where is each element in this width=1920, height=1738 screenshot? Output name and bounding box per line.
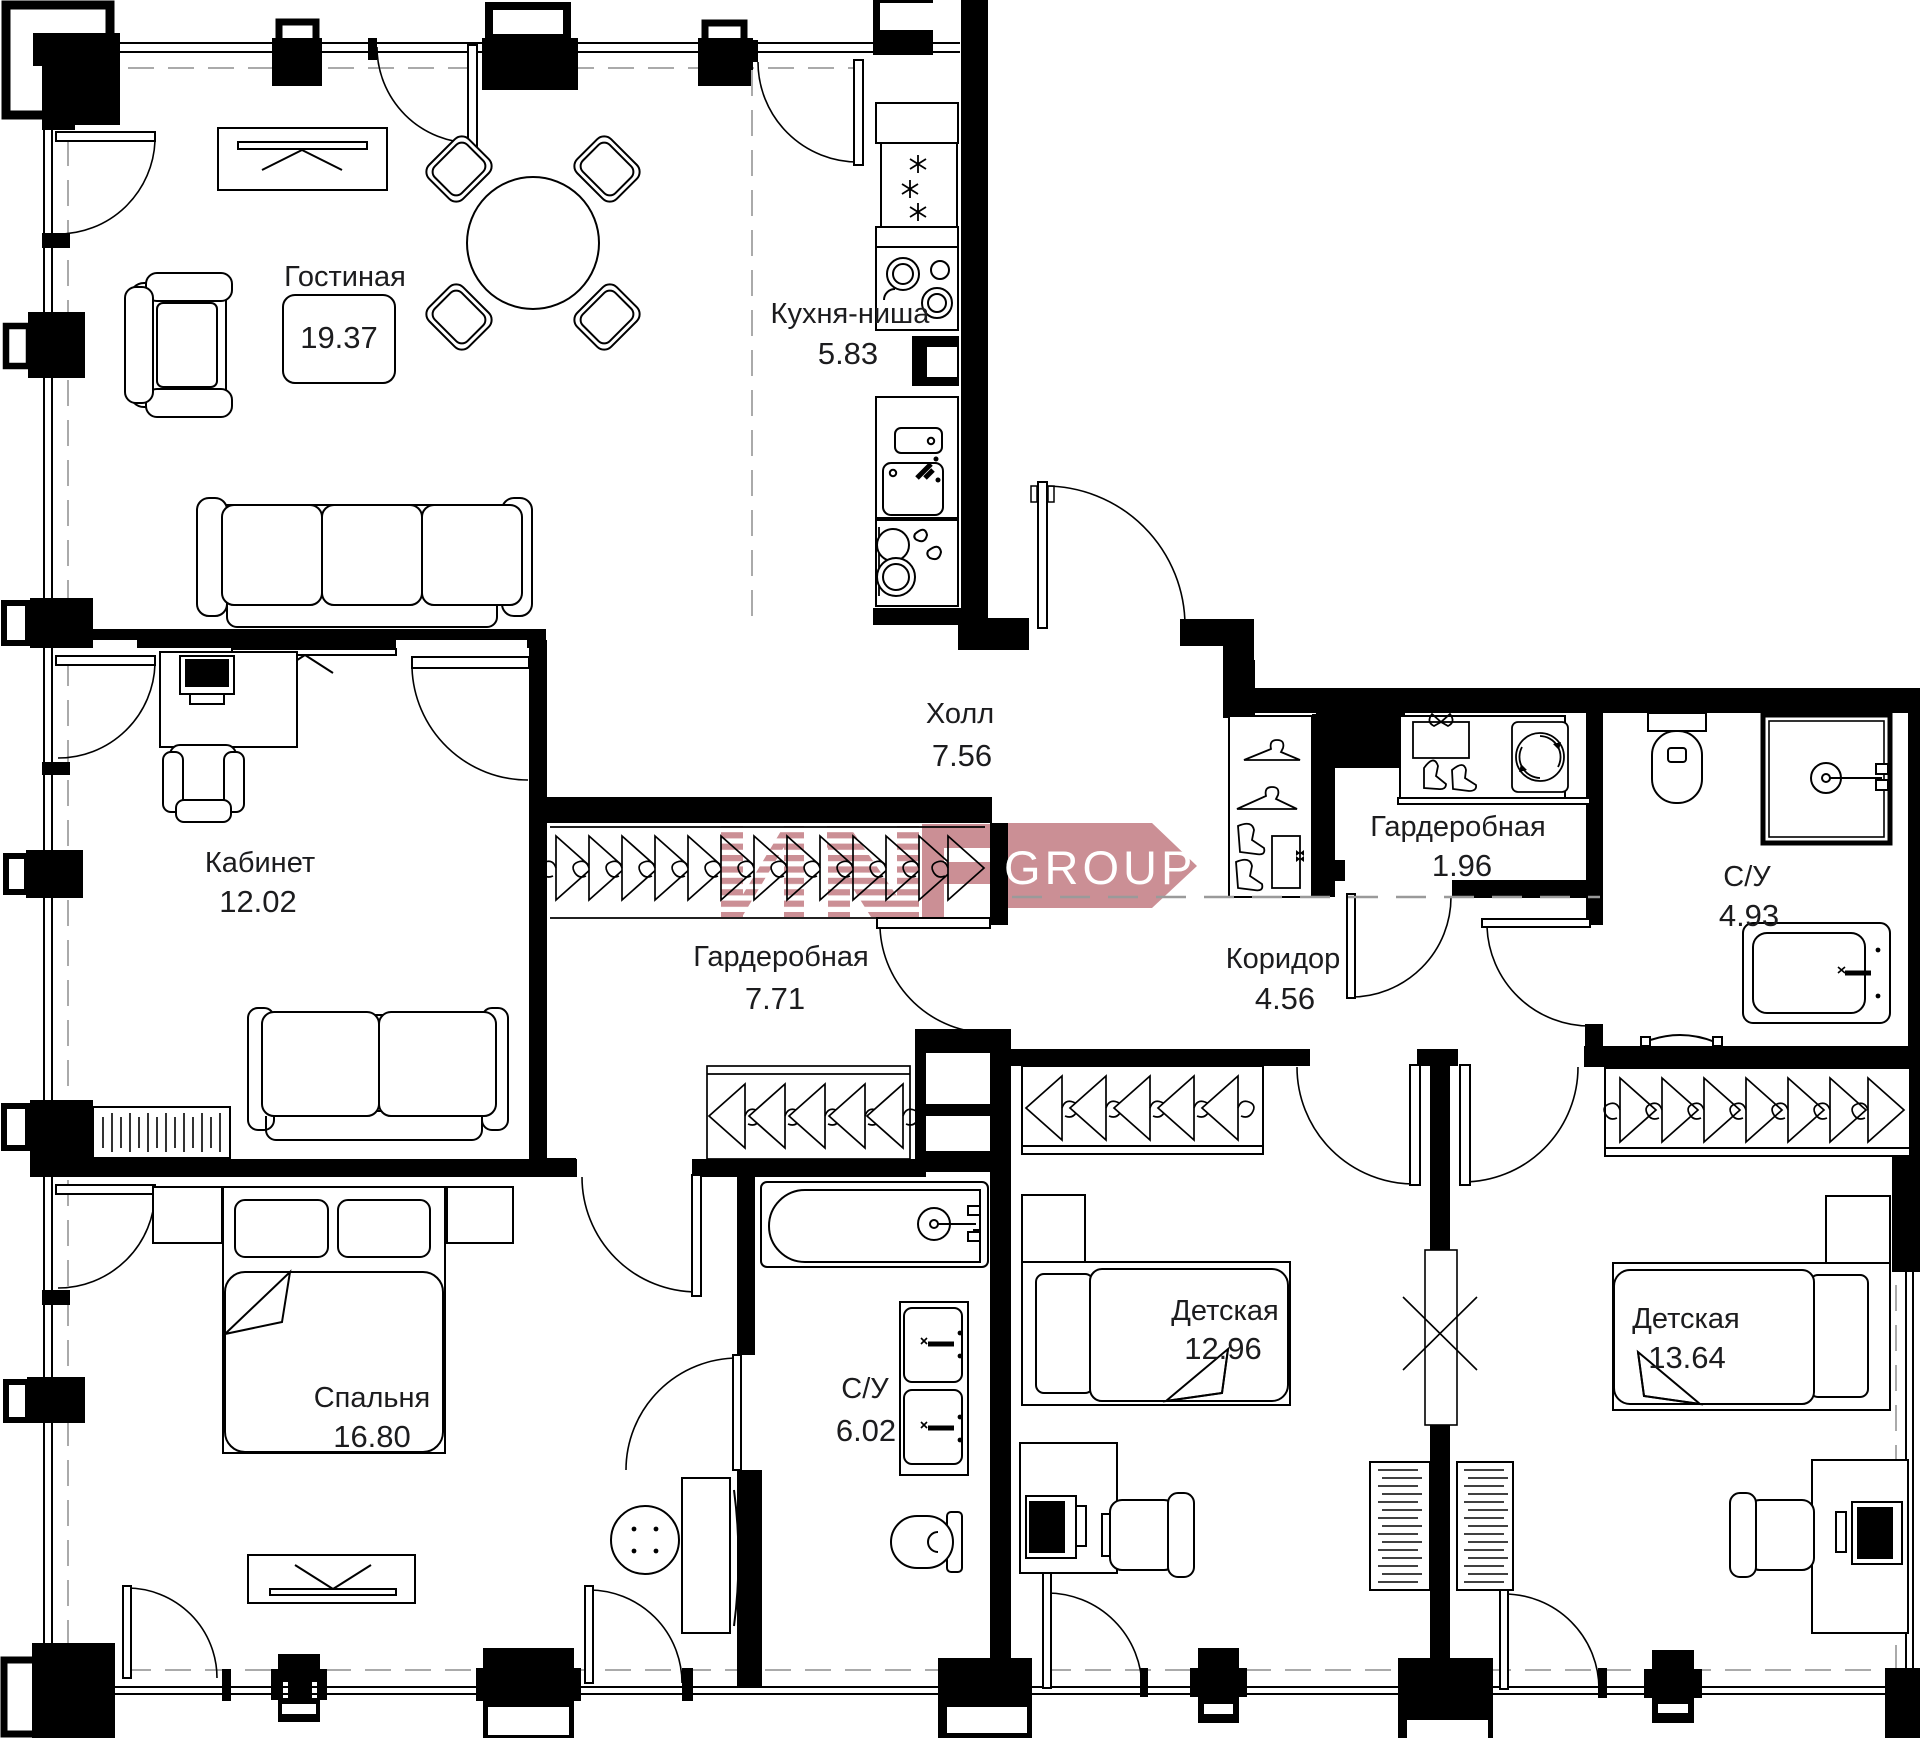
svg-text:Детская: Детская xyxy=(1171,1295,1278,1327)
svg-text:5.83: 5.83 xyxy=(818,336,878,371)
svg-text:Детская: Детская xyxy=(1632,1303,1739,1335)
svg-text:Кабинет: Кабинет xyxy=(205,847,315,879)
svg-text:Спальня: Спальня xyxy=(314,1382,431,1414)
svg-text:Кухня-ниша: Кухня-ниша xyxy=(771,298,931,330)
svg-text:С/У: С/У xyxy=(841,1373,889,1405)
svg-text:Гардеробная: Гардеробная xyxy=(693,941,868,973)
svg-text:19.37: 19.37 xyxy=(300,320,378,355)
svg-text:12.02: 12.02 xyxy=(219,884,297,919)
svg-text:Холл: Холл xyxy=(926,698,994,730)
svg-text:4.56: 4.56 xyxy=(1255,981,1315,1016)
svg-text:Гостиная: Гостиная xyxy=(284,261,406,293)
svg-text:12.96: 12.96 xyxy=(1184,1331,1262,1366)
svg-text:6.02: 6.02 xyxy=(836,1413,896,1448)
svg-text:4.93: 4.93 xyxy=(1719,898,1779,933)
svg-text:16.80: 16.80 xyxy=(333,1419,411,1454)
svg-text:Коридор: Коридор xyxy=(1226,943,1341,975)
svg-text:С/У: С/У xyxy=(1723,861,1771,893)
svg-text:GROUP: GROUP xyxy=(1004,841,1196,894)
svg-text:7.56: 7.56 xyxy=(932,738,992,773)
svg-text:7.71: 7.71 xyxy=(745,981,805,1016)
svg-text:1.96: 1.96 xyxy=(1432,848,1492,883)
svg-text:13.64: 13.64 xyxy=(1648,1340,1726,1375)
svg-text:Гардеробная: Гардеробная xyxy=(1370,811,1545,843)
